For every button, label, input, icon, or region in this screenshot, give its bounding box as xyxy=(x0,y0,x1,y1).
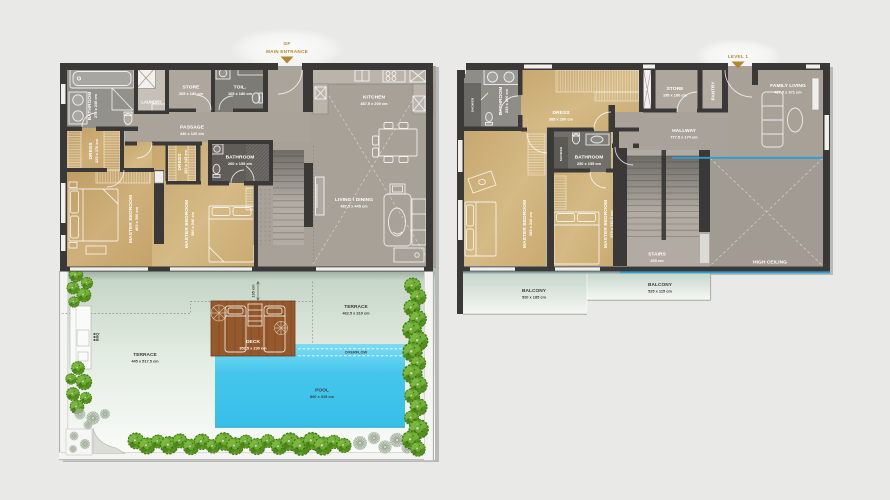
svg-text:570 x 310.5 cm: 570 x 310.5 cm xyxy=(609,210,614,238)
svg-text:520 x 185 cm: 520 x 185 cm xyxy=(522,295,547,300)
svg-text:LEVEL 1: LEVEL 1 xyxy=(728,54,748,59)
svg-text:MASTER BEDROOM: MASTER BEDROOM xyxy=(184,200,190,248)
svg-text:272 x 235 cm: 272 x 235 cm xyxy=(93,93,98,118)
svg-text:LAUNDRY: LAUNDRY xyxy=(141,100,161,105)
svg-text:DRESS: DRESS xyxy=(552,110,570,116)
svg-text:405 x 390 cm: 405 x 390 cm xyxy=(134,206,139,231)
svg-text:MAIN ENTRANCE: MAIN ENTRANCE xyxy=(266,49,308,54)
svg-text:TOIL.: TOIL. xyxy=(234,85,247,91)
svg-text:250 x 155 cm: 250 x 155 cm xyxy=(577,161,602,166)
svg-text:160 x 145 cm: 160 x 145 cm xyxy=(183,149,188,174)
svg-text:440 x 120 cm: 440 x 120 cm xyxy=(180,131,205,136)
svg-text:445 x 517.5 cm: 445 x 517.5 cm xyxy=(131,359,159,364)
svg-text:BATHROOM: BATHROOM xyxy=(226,155,255,161)
svg-text:265 x 180 cm: 265 x 180 cm xyxy=(179,91,204,96)
svg-text:DRESS: DRESS xyxy=(177,153,183,171)
svg-text:PASSAGE: PASSAGE xyxy=(180,125,205,131)
svg-text:380 x 240 cm: 380 x 240 cm xyxy=(190,211,195,236)
svg-text:BALCONY: BALCONY xyxy=(648,282,673,288)
svg-text:165 x 180 cm: 165 x 180 cm xyxy=(228,91,253,96)
svg-text:GF: GF xyxy=(283,41,290,47)
svg-text:800 x 315 cm: 800 x 315 cm xyxy=(310,394,335,399)
svg-text:DRESS: DRESS xyxy=(88,142,94,160)
svg-text:STORE: STORE xyxy=(666,86,684,92)
svg-text:135 cm: 135 cm xyxy=(252,284,256,298)
svg-text:MASTER BEDROOM: MASTER BEDROOM xyxy=(522,200,528,248)
svg-text:LIVING / DINING: LIVING / DINING xyxy=(335,197,373,203)
svg-text:385 x 260 cm: 385 x 260 cm xyxy=(549,117,574,122)
svg-text:427.5 x 371 cm: 427.5 x 371 cm xyxy=(774,90,802,95)
svg-text:462.5 x 310 cm: 462.5 x 310 cm xyxy=(342,311,370,316)
svg-text:MASTER BEDROOM: MASTER BEDROOM xyxy=(603,200,609,248)
svg-text:HALLWAY: HALLWAY xyxy=(672,128,696,134)
svg-text:BATHROOM: BATHROOM xyxy=(498,87,504,116)
svg-text:487.5 x 445 cm: 487.5 x 445 cm xyxy=(340,204,368,209)
svg-text:KITCHEN: KITCHEN xyxy=(363,95,386,101)
svg-text:385 x 310 cm: 385 x 310 cm xyxy=(528,211,533,236)
svg-text:BALCONY: BALCONY xyxy=(522,288,547,294)
svg-text:PANTRY: PANTRY xyxy=(711,82,716,101)
svg-text:525 x 115 cm: 525 x 115 cm xyxy=(648,289,672,294)
svg-text:195 x 180 cm: 195 x 180 cm xyxy=(663,93,688,98)
svg-text:BATHROOM: BATHROOM xyxy=(87,92,93,121)
svg-text:DECK: DECK xyxy=(246,339,260,345)
svg-text:260 x 155 cm: 260 x 155 cm xyxy=(228,161,253,166)
svg-text:235 x 260 cm: 235 x 260 cm xyxy=(504,88,509,113)
svg-text:STAIRS: STAIRS xyxy=(648,252,667,258)
svg-text:TERRACE: TERRACE xyxy=(133,352,157,358)
svg-text:SHOWER: SHOWER xyxy=(471,97,475,112)
svg-text:BATHROOM: BATHROOM xyxy=(575,155,604,161)
svg-text:777.5 x 174 cm: 777.5 x 174 cm xyxy=(670,135,698,140)
svg-text:STORE: STORE xyxy=(182,85,200,91)
svg-text:TERRACE: TERRACE xyxy=(344,304,368,310)
svg-text:MASTER BEDROOM: MASTER BEDROOM xyxy=(128,195,134,243)
svg-text:352.5 x 230 cm: 352.5 x 230 cm xyxy=(239,346,267,351)
svg-text:487.5 x 200 cm: 487.5 x 200 cm xyxy=(360,101,388,106)
svg-text:OVERFLOW: OVERFLOW xyxy=(345,350,368,355)
svg-text:250 cm: 250 cm xyxy=(650,258,664,263)
svg-text:FAMILY LIVING: FAMILY LIVING xyxy=(770,83,806,89)
svg-text:HIGH CEILING: HIGH CEILING xyxy=(753,260,787,266)
svg-text:BBQ: BBQ xyxy=(96,333,100,341)
svg-text:225 x 170 cm: 225 x 170 cm xyxy=(94,138,99,163)
svg-text:SHOWER: SHOWER xyxy=(559,146,563,161)
svg-text:POOL: POOL xyxy=(315,388,329,394)
